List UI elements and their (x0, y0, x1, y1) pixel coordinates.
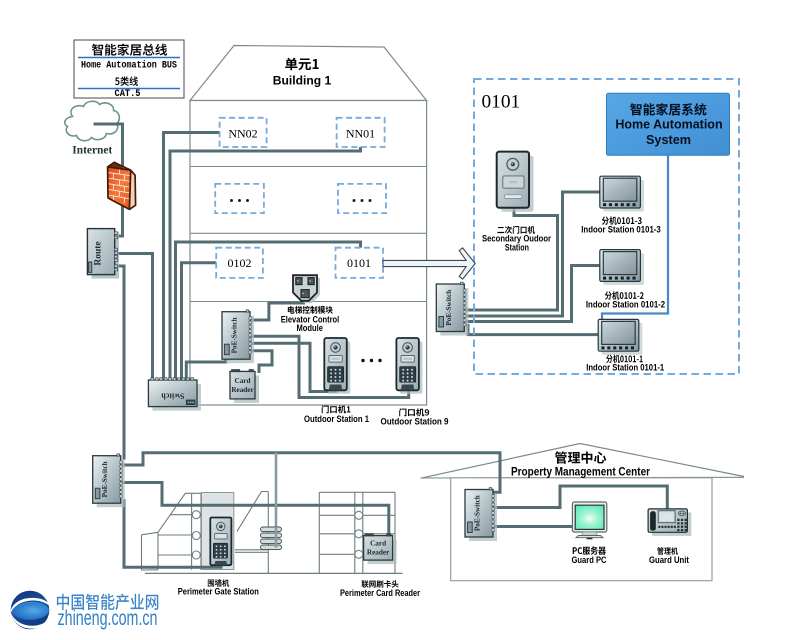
svg-text:NN02: NN02 (228, 127, 257, 141)
svg-text:Outdoor Station 1: Outdoor Station 1 (304, 414, 369, 424)
svg-text:PoE-Switch: PoE-Switch (101, 461, 109, 497)
svg-text:Perimeter Card Reader: Perimeter Card Reader (340, 588, 420, 599)
svg-text:Guard PC: Guard PC (572, 555, 607, 566)
svg-text:Guard Unit: Guard Unit (649, 555, 690, 566)
svg-text:Indoor Station 0101-3: Indoor Station 0101-3 (581, 225, 661, 236)
svg-text:Home Automation BUS: Home Automation BUS (81, 59, 177, 71)
svg-text:Outdoor Station 9: Outdoor Station 9 (381, 417, 449, 427)
svg-text:PoE-Switch: PoE-Switch (474, 495, 482, 531)
svg-text:System: System (646, 132, 691, 147)
svg-text:Indoor Station 0101-2: Indoor Station 0101-2 (586, 300, 665, 311)
svg-text:zhineng.com.cn: zhineng.com.cn (58, 607, 158, 630)
svg-text:Building 1: Building 1 (273, 74, 332, 88)
svg-text:PoE-Switch: PoE-Switch (445, 290, 453, 326)
svg-text:0101: 0101 (482, 92, 521, 113)
svg-text:PoE-Switch: PoE-Switch (231, 317, 239, 353)
svg-text:Perimeter Gate Station: Perimeter Gate Station (178, 586, 259, 597)
svg-text:0102: 0102 (228, 256, 252, 270)
svg-text:Home Automation: Home Automation (615, 117, 722, 132)
svg-text:NN01: NN01 (346, 127, 375, 141)
svg-text:Reader: Reader (367, 549, 390, 557)
svg-text:Property Management Center: Property Management Center (511, 467, 650, 479)
svg-text:Indoor Station 0101-1: Indoor Station 0101-1 (586, 362, 664, 373)
svg-text:Card: Card (235, 377, 251, 385)
svg-text:Station: Station (505, 243, 529, 253)
svg-text:Route: Route (94, 241, 104, 265)
svg-text:Internet: Internet (72, 145, 112, 157)
svg-text:Reader: Reader (231, 386, 254, 394)
svg-text:CAT.5: CAT.5 (115, 88, 141, 100)
svg-text:Card: Card (370, 540, 386, 548)
svg-text:0101: 0101 (347, 256, 371, 270)
svg-text:Switch: Switch (161, 392, 185, 401)
svg-text:Module: Module (296, 323, 323, 334)
